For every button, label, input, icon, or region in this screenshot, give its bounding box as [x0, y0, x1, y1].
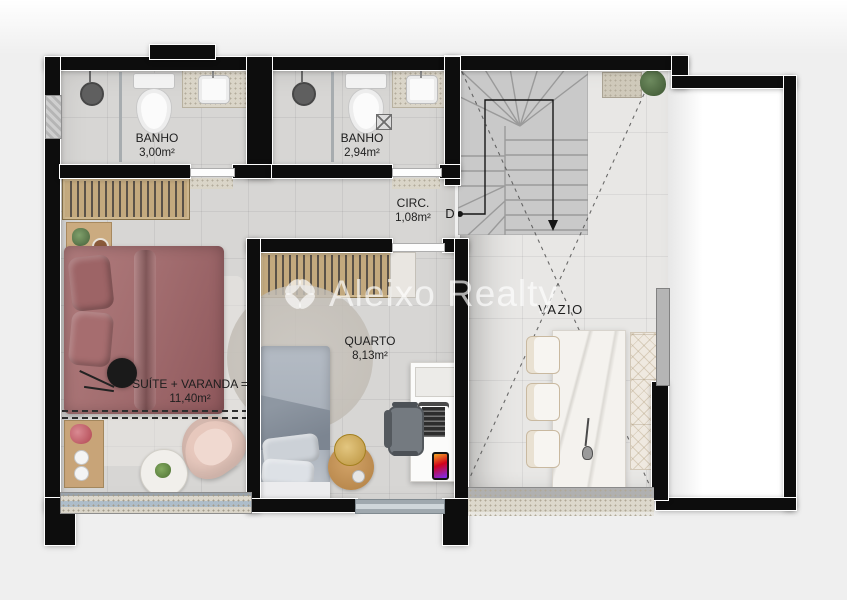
- window: [656, 288, 670, 386]
- stairs-direction-label: D: [443, 206, 457, 222]
- cup-icon: [352, 470, 365, 483]
- wall: [247, 239, 392, 252]
- room-area: 11,40m²: [100, 392, 280, 406]
- wall: [784, 76, 796, 510]
- toilet-tank: [133, 73, 175, 89]
- watermark-text: Aleixo Realty: [329, 273, 558, 315]
- doormat: [602, 72, 642, 98]
- floor-plan: BANHO 3,00m² BANHO 2,94m² CIRC. 1,08m² Q…: [0, 0, 847, 600]
- room-label-quarto: QUARTO 8,13m²: [320, 334, 420, 363]
- vent-window: [45, 95, 62, 139]
- wall: [247, 239, 260, 512]
- wall: [440, 165, 460, 178]
- shower-icon: [80, 82, 104, 106]
- varanda-division-line: [62, 410, 248, 412]
- wall: [652, 382, 668, 500]
- aleixo-realty-logo-icon: [278, 272, 322, 316]
- door-leaf: [392, 168, 442, 177]
- door-leaf: [190, 168, 235, 177]
- wall: [233, 165, 272, 178]
- room-label-banho1: BANHO 3,00m²: [107, 131, 207, 160]
- office-chair-armrest: [392, 402, 418, 407]
- desk-drawer: [415, 367, 455, 397]
- office-chair: [388, 406, 424, 456]
- room-label-suite: SUÍTE + VARANDA = 11,40m²: [100, 377, 280, 406]
- flowers-icon: [70, 424, 92, 444]
- shower-icon: [292, 82, 316, 106]
- double-height-cutout: [668, 88, 784, 498]
- watermark: Aleixo Realty: [278, 272, 558, 316]
- room-name: BANHO: [312, 131, 412, 146]
- wall: [443, 499, 468, 545]
- door-threshold: [392, 178, 440, 189]
- pillow: [68, 310, 115, 367]
- sink-faucet: [212, 70, 214, 78]
- varanda-division-line: [62, 417, 248, 419]
- window: [355, 499, 445, 514]
- room-area: 3,00m²: [107, 146, 207, 160]
- room-name: SUÍTE + VARANDA =: [100, 377, 280, 392]
- smartphone-icon: [432, 452, 449, 480]
- door-threshold: [190, 178, 233, 189]
- sink-icon: [406, 75, 438, 104]
- floor-drain-icon: [376, 114, 392, 130]
- wall: [247, 499, 357, 512]
- wall: [272, 165, 392, 178]
- room-area: 8,13m²: [320, 349, 420, 363]
- pillow: [67, 254, 114, 312]
- suite-wardrobe: [62, 178, 190, 220]
- wall: [60, 165, 190, 178]
- room-label-banho2: BANHO 2,94m²: [312, 131, 412, 160]
- dining-chair: [526, 336, 560, 374]
- dining-table: [552, 330, 626, 498]
- pendant-light-icon: [582, 446, 593, 460]
- wall: [150, 45, 215, 59]
- wall: [672, 76, 796, 88]
- room-area: 2,94m²: [312, 146, 412, 160]
- dining-chair: [526, 383, 560, 421]
- room-name: QUARTO: [320, 334, 420, 349]
- toilet-tank: [345, 73, 387, 89]
- shower-stem: [301, 70, 303, 82]
- wall: [656, 498, 796, 510]
- balcony-railing: [60, 492, 252, 514]
- sink-faucet: [420, 70, 422, 78]
- wall: [247, 57, 272, 178]
- office-chair-armrest: [392, 451, 418, 456]
- dining-chair: [526, 430, 560, 468]
- candle-icon: [74, 450, 89, 465]
- wall: [445, 56, 688, 70]
- room-name: BANHO: [107, 131, 207, 146]
- door-leaf: [392, 243, 445, 252]
- sink-icon: [198, 75, 230, 104]
- brass-tray-icon: [334, 434, 366, 466]
- balcony-ledge: [468, 487, 654, 516]
- plant-icon: [640, 70, 666, 96]
- office-chair-back: [384, 410, 392, 448]
- shower-stem: [89, 70, 91, 82]
- candle-icon: [74, 466, 89, 481]
